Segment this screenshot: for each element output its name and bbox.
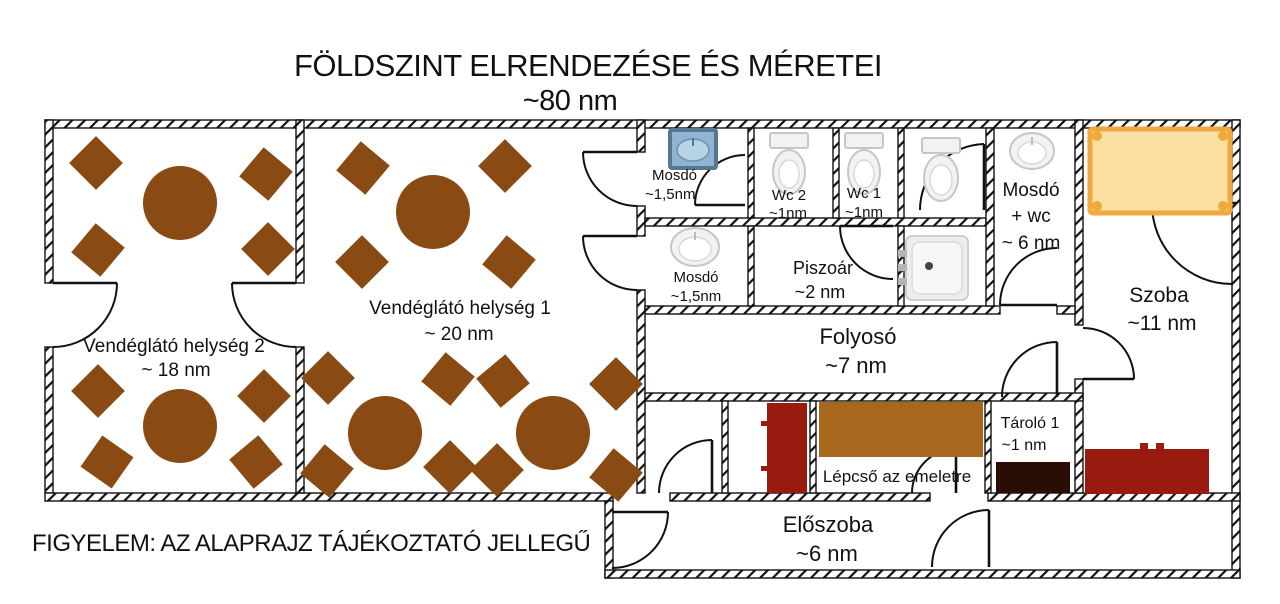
chair-icon — [482, 235, 536, 289]
chair-icon — [335, 235, 389, 289]
radiator-icon — [761, 403, 807, 493]
door-corridor-vestibule — [1002, 342, 1057, 397]
page-subtitle-area: ~80 nm — [523, 85, 618, 117]
round-table-icon — [143, 389, 217, 463]
wall-right — [1232, 120, 1240, 578]
chair-icon — [470, 443, 524, 497]
wall-corridor-bottom — [645, 393, 1083, 401]
label-corridor-area: ~7 nm — [825, 353, 887, 378]
sink-icon — [1010, 133, 1054, 169]
label-washroom-wc-line1: Mosdó — [1002, 180, 1059, 201]
round-table-icon — [516, 396, 590, 470]
door-hallway-right — [932, 510, 989, 567]
wall-bottom-c — [988, 493, 1240, 501]
wall-bath-block-b — [637, 206, 645, 236]
label-urinal-name: Piszoár — [793, 258, 853, 278]
wall-v-wc2-wc1 — [833, 128, 839, 218]
chair-icon — [423, 440, 477, 494]
floor-plan: FÖLDSZINT ELRENDEZÉSE ÉS MÉRETEI ~80 nm … — [0, 0, 1280, 604]
wall-bedroom-upper — [1075, 120, 1083, 325]
label-dining1-name: Vendéglátó helység 1 — [369, 298, 551, 319]
sink-icon — [671, 228, 719, 266]
label-wc1-name: Wc 1 — [847, 185, 881, 202]
wall-bottom-b — [670, 493, 930, 501]
label-corridor-name: Folyosó — [819, 324, 896, 349]
storage-unit-icon — [996, 462, 1070, 493]
shower-tray-icon — [898, 236, 968, 300]
stairs-icon — [819, 402, 983, 457]
wall-v-bottomrow-3 — [985, 401, 991, 493]
chair-icon — [476, 354, 530, 408]
round-table-icon — [396, 175, 470, 249]
wall-v-bottomrow-1 — [722, 401, 728, 493]
toilet-icon — [922, 138, 960, 201]
chair-icon — [229, 435, 283, 489]
label-washroom-mid-area: ~1,5nm — [671, 288, 721, 305]
chair-icon — [241, 222, 295, 276]
wall-v-washroom-wc2 — [748, 128, 754, 218]
wall-v-wc1-wc3 — [898, 128, 904, 218]
chair-icon — [300, 444, 354, 498]
label-hallway-name: Előszoba — [783, 512, 874, 537]
wall-v-washroom-urinal — [748, 226, 754, 306]
label-washroom-wc-area: ~ 6 nm — [1002, 233, 1061, 254]
door-dining1-lower — [583, 236, 637, 290]
label-storage-name: Tároló 1 — [1001, 415, 1060, 432]
wall-left-upper — [45, 120, 53, 283]
wall-bath-row-divider — [645, 218, 986, 226]
door-bedroom-top — [1152, 204, 1232, 284]
label-wc1-area: ~1nm — [845, 204, 883, 221]
label-bedroom-name: Szoba — [1129, 284, 1189, 307]
label-urinal-area: ~2 nm — [795, 282, 846, 302]
page-title: FÖLDSZINT ELRENDEZÉSE ÉS MÉRETEI — [294, 48, 882, 83]
chair-icon — [81, 436, 134, 489]
sofa-icon — [1085, 443, 1209, 494]
footnote-disclaimer: FIGYELEM: AZ ALAPRAJZ TÁJÉKOZTATÓ JELLEG… — [32, 530, 590, 557]
label-dining2-area: ~ 18 nm — [141, 360, 210, 381]
label-hallway-area: ~6 nm — [796, 541, 858, 566]
wall-bath-block-a — [637, 120, 645, 152]
door-washroom-wc — [1000, 248, 1057, 305]
chair-icon — [421, 352, 475, 406]
label-wc2-area: ~1nm — [769, 205, 807, 222]
label-dining2-name: Vendéglátó helység 2 — [83, 336, 265, 357]
wall-dining-divider-upper — [296, 120, 304, 283]
label-stairs-name: Lépcső az emeletre — [823, 467, 971, 486]
wall-corridor-top-a — [645, 306, 1000, 314]
chair-icon — [239, 147, 293, 201]
door-utility-room — [659, 440, 712, 493]
round-table-icon — [143, 166, 217, 240]
label-wc2-name: Wc 2 — [772, 187, 806, 204]
label-washroom-top-area: ~1,5nm — [645, 186, 695, 203]
wall-bath-block-c — [637, 290, 645, 493]
wall-v-mosdo-wc-left — [986, 128, 994, 306]
toilet-icon — [770, 133, 808, 194]
chair-icon — [589, 357, 643, 411]
dining-furniture — [69, 136, 643, 502]
label-washroom-wc-line2: + wc — [1011, 206, 1051, 227]
chair-icon — [71, 223, 125, 277]
chair-icon — [69, 136, 123, 190]
label-bedroom-area: ~11 nm — [1127, 312, 1196, 335]
bed-icon — [1090, 129, 1230, 213]
chair-icon — [237, 369, 291, 423]
door-bedroom-entry — [1083, 328, 1134, 379]
wall-v-bottomrow-2 — [810, 401, 816, 493]
blue-sink-icon — [670, 130, 716, 168]
label-dining1-area: ~ 20 nm — [424, 324, 493, 345]
round-table-icon — [348, 396, 422, 470]
label-washroom-top-name: Mosdó — [652, 167, 697, 184]
wall-hallway-left — [605, 501, 613, 578]
chair-icon — [71, 364, 125, 418]
floor-plan-svg: FÖLDSZINT ELRENDEZÉSE ÉS MÉRETEI ~80 nm … — [0, 0, 1280, 604]
chair-icon — [336, 141, 390, 195]
wall-hallway-bottom — [605, 570, 1240, 578]
wall-left-lower — [45, 347, 53, 493]
wall-corridor-top-b — [1057, 306, 1075, 314]
chair-icon — [301, 351, 355, 405]
chair-icon — [478, 139, 532, 193]
door-dining1-upper — [583, 152, 637, 206]
label-storage-area: ~1 nm — [1002, 437, 1047, 454]
door-hallway-left — [612, 512, 668, 568]
label-washroom-mid-name: Mosdó — [673, 269, 718, 286]
room-hallway — [613, 501, 1232, 570]
